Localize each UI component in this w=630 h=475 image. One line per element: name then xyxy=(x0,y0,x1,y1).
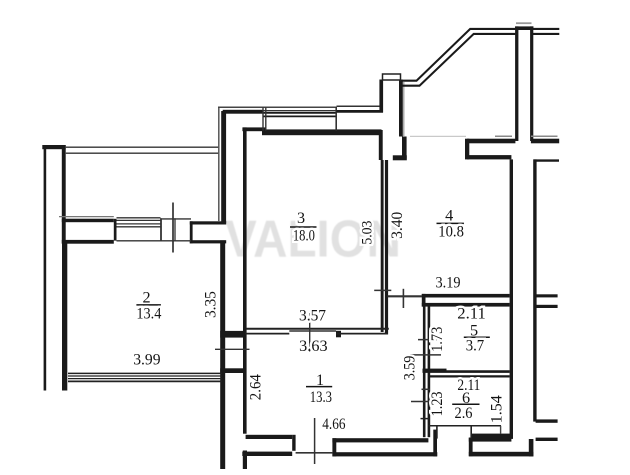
svg-text:2.6: 2.6 xyxy=(455,404,473,422)
svg-text:18.0: 18.0 xyxy=(293,227,315,245)
svg-text:13.3: 13.3 xyxy=(310,388,332,406)
svg-text:3.63: 3.63 xyxy=(299,337,327,355)
svg-text:3.59: 3.59 xyxy=(400,356,418,381)
svg-text:10.8: 10.8 xyxy=(438,223,464,241)
svg-text:3.40: 3.40 xyxy=(388,212,406,239)
svg-text:1.23: 1.23 xyxy=(428,391,446,416)
svg-text:3: 3 xyxy=(297,209,305,227)
svg-text:3.99: 3.99 xyxy=(133,350,160,368)
svg-text:3.35: 3.35 xyxy=(201,291,219,318)
svg-text:2.64: 2.64 xyxy=(247,374,265,400)
svg-text:1.54: 1.54 xyxy=(488,395,506,423)
svg-text:3.7: 3.7 xyxy=(466,337,485,355)
svg-text:5.03: 5.03 xyxy=(360,221,376,245)
svg-text:1.73: 1.73 xyxy=(428,327,446,352)
svg-text:3.57: 3.57 xyxy=(299,307,326,325)
svg-text:2.11: 2.11 xyxy=(457,305,486,323)
svg-text:3.19: 3.19 xyxy=(436,273,461,291)
svg-text:4.66: 4.66 xyxy=(322,415,345,433)
svg-text:13.4: 13.4 xyxy=(136,305,161,323)
